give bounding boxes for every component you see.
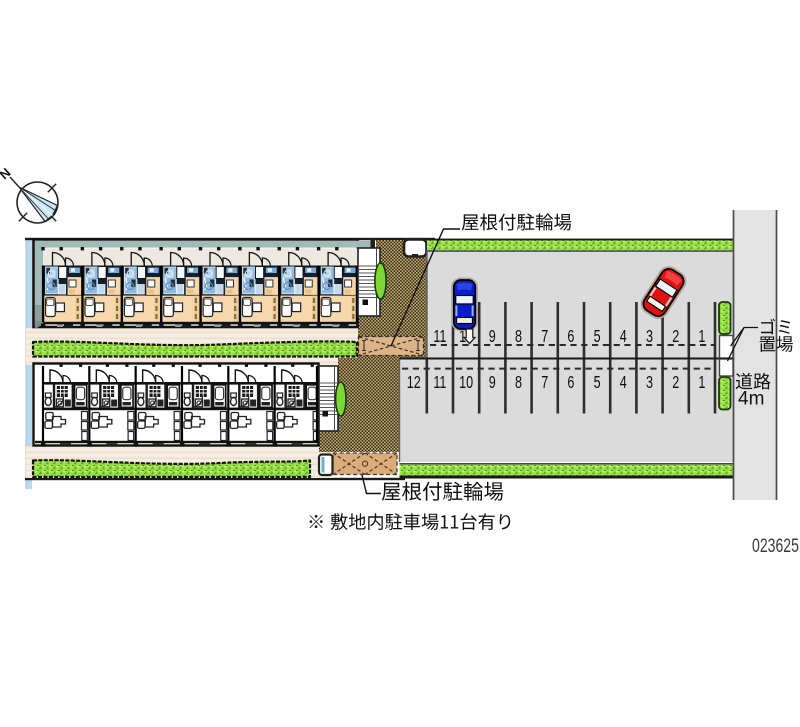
svg-text:2: 2 [672, 327, 679, 347]
svg-text:9: 9 [489, 327, 496, 347]
svg-text:4: 4 [620, 373, 627, 393]
svg-text:9: 9 [489, 373, 496, 393]
svg-text:12: 12 [407, 373, 421, 393]
svg-text:5: 5 [594, 373, 601, 393]
svg-text:7: 7 [541, 327, 548, 347]
svg-text:2: 2 [672, 373, 679, 393]
svg-text:6: 6 [567, 327, 574, 347]
svg-text:3: 3 [646, 373, 653, 393]
svg-text:023625: 023625 [752, 535, 799, 557]
svg-text:8: 8 [515, 373, 522, 393]
svg-text:4: 4 [620, 327, 627, 347]
svg-text:10: 10 [459, 373, 473, 393]
svg-text:1: 1 [698, 327, 705, 347]
svg-text:11: 11 [433, 327, 446, 347]
svg-text:3: 3 [646, 327, 653, 347]
svg-text:5: 5 [594, 327, 601, 347]
svg-text:1: 1 [698, 373, 705, 393]
svg-text:7: 7 [541, 373, 548, 393]
svg-text:8: 8 [515, 327, 522, 347]
svg-text:4m: 4m [738, 389, 764, 410]
svg-text:6: 6 [567, 373, 574, 393]
svg-text:11: 11 [433, 373, 446, 393]
